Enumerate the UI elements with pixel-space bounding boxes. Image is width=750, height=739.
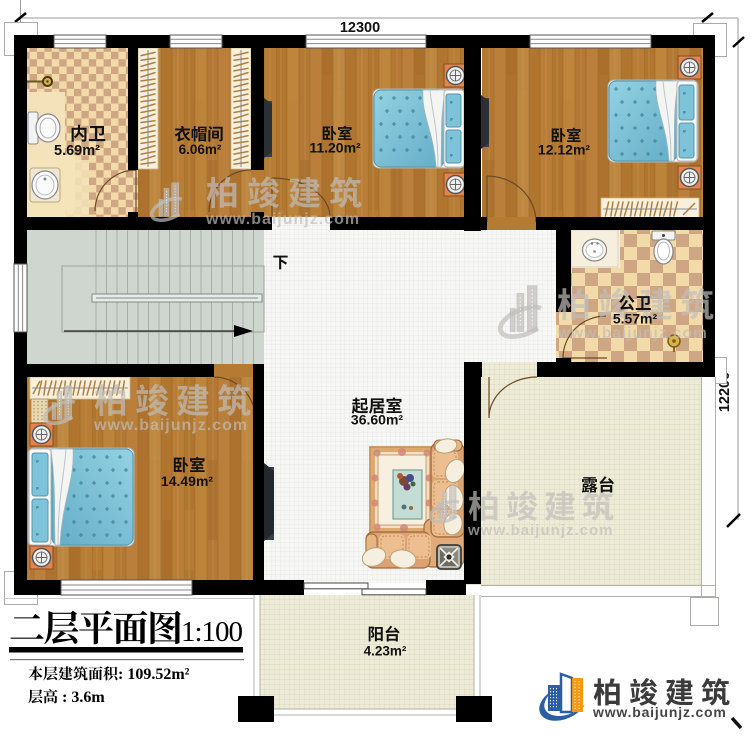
svg-text:: 109.52m²: : 109.52m² <box>118 666 190 683</box>
svg-text:www.baijunjz.com: www.baijunjz.com <box>93 417 248 434</box>
svg-text:: 3.6m: : 3.6m <box>62 689 105 706</box>
svg-text:www.baijunjz.com: www.baijunjz.com <box>205 211 360 228</box>
svg-text:12.12m²: 12.12m² <box>538 142 590 158</box>
svg-text:1:100: 1:100 <box>181 616 243 648</box>
svg-text:www.baijunjz.com: www.baijunjz.com <box>467 522 613 539</box>
svg-text:www.baijunjz.com: www.baijunjz.com <box>557 325 708 342</box>
svg-text:11.20m²: 11.20m² <box>309 140 361 156</box>
svg-text:6.06m²: 6.06m² <box>179 142 222 157</box>
svg-text:5.69m²: 5.69m² <box>54 143 100 159</box>
svg-text:5.57m²: 5.57m² <box>613 311 658 327</box>
svg-text:4.23m²: 4.23m² <box>364 644 407 659</box>
svg-text:36.60m²: 36.60m² <box>351 412 403 428</box>
svg-text:12300: 12300 <box>340 20 380 36</box>
svg-text:14.49m²: 14.49m² <box>161 473 213 489</box>
svg-text:www.baijunjz.com: www.baijunjz.com <box>592 704 727 720</box>
